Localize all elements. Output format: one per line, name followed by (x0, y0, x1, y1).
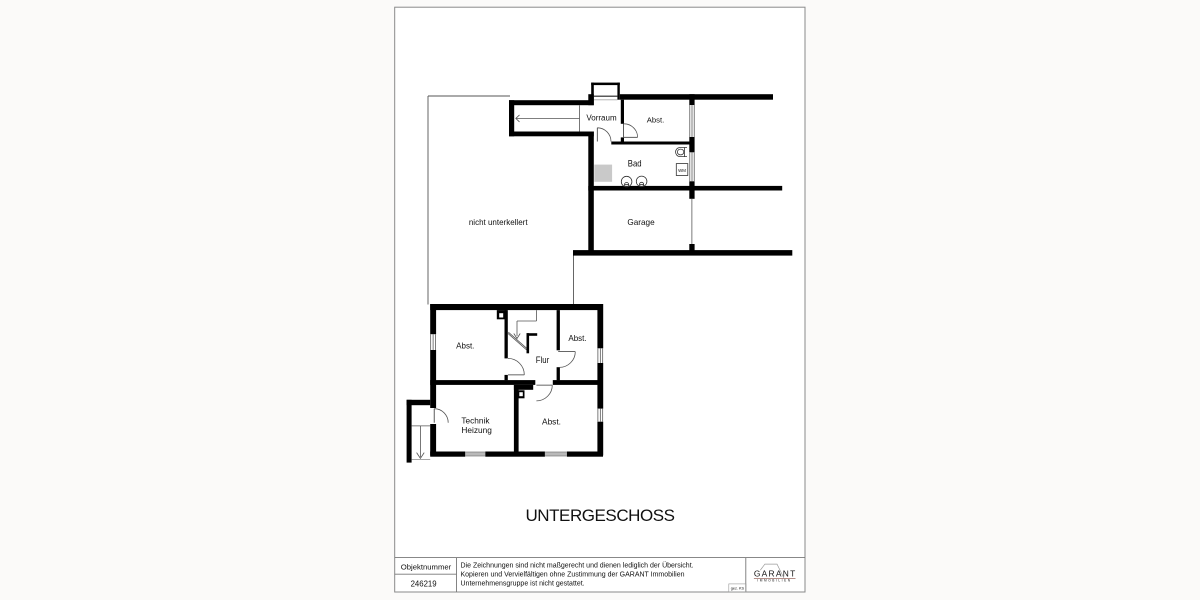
svg-text:Abst.: Abst. (456, 342, 474, 351)
svg-text:Die Zeichnungen sind nicht maß: Die Zeichnungen sind nicht maßgerecht un… (461, 561, 694, 569)
svg-text:gez. KS: gez. KS (731, 586, 745, 590)
svg-text:Bad: Bad (628, 159, 642, 170)
svg-text:246219: 246219 (411, 580, 437, 589)
svg-text:Unternehmensgruppe ist nicht g: Unternehmensgruppe ist nicht gestattet. (461, 581, 585, 588)
svg-text:Vorraum: Vorraum (586, 114, 617, 123)
svg-text:Heizung: Heizung (461, 425, 492, 435)
svg-text:UNTERGESCHOSS: UNTERGESCHOSS (525, 506, 674, 525)
svg-text:IMMOBILIEN: IMMOBILIEN (757, 578, 791, 582)
svg-text:Kopieren und Vervielfältigen o: Kopieren und Vervielfältigen ohne Zustim… (461, 571, 685, 578)
svg-text:Abst.: Abst. (542, 416, 561, 426)
svg-text:Abst.: Abst. (568, 334, 586, 343)
svg-text:Flur: Flur (536, 355, 549, 365)
svg-text:GARANT: GARANT (754, 569, 797, 579)
svg-text:WM: WM (678, 168, 686, 173)
svg-text:Abst.: Abst. (647, 116, 665, 125)
svg-text:Objektnummer: Objektnummer (401, 563, 452, 572)
svg-text:Garage: Garage (627, 218, 655, 227)
svg-text:Technik: Technik (461, 416, 490, 426)
svg-text:nicht unterkellert: nicht unterkellert (469, 218, 528, 227)
